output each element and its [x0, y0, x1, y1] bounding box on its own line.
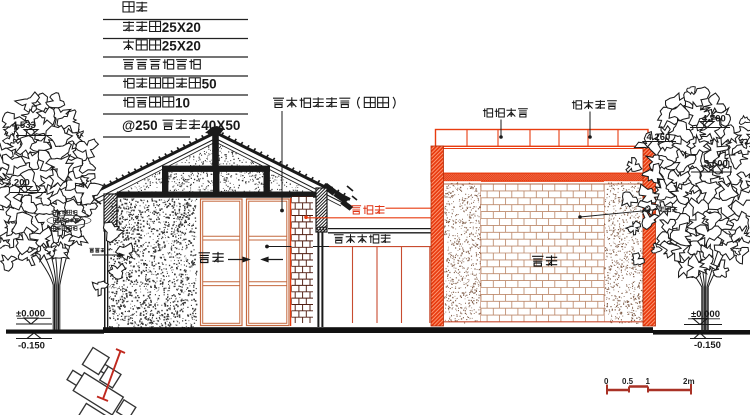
svg-text:-0.150: -0.150: [694, 340, 721, 351]
svg-text:4.700: 4.700: [702, 114, 726, 125]
svg-text:10: 10: [175, 96, 190, 111]
svg-text:25X20: 25X20: [162, 20, 201, 35]
svg-text:50: 50: [202, 77, 217, 92]
svg-text:2m: 2m: [683, 377, 695, 386]
svg-text:0: 0: [604, 377, 609, 386]
svg-text:@250: @250: [122, 118, 158, 133]
svg-text:0.5: 0.5: [622, 377, 634, 386]
svg-text:1: 1: [646, 377, 651, 386]
svg-text:3.600: 3.600: [704, 159, 728, 170]
svg-text:-0.150: -0.150: [18, 341, 45, 352]
svg-text:25X20: 25X20: [162, 39, 201, 54]
